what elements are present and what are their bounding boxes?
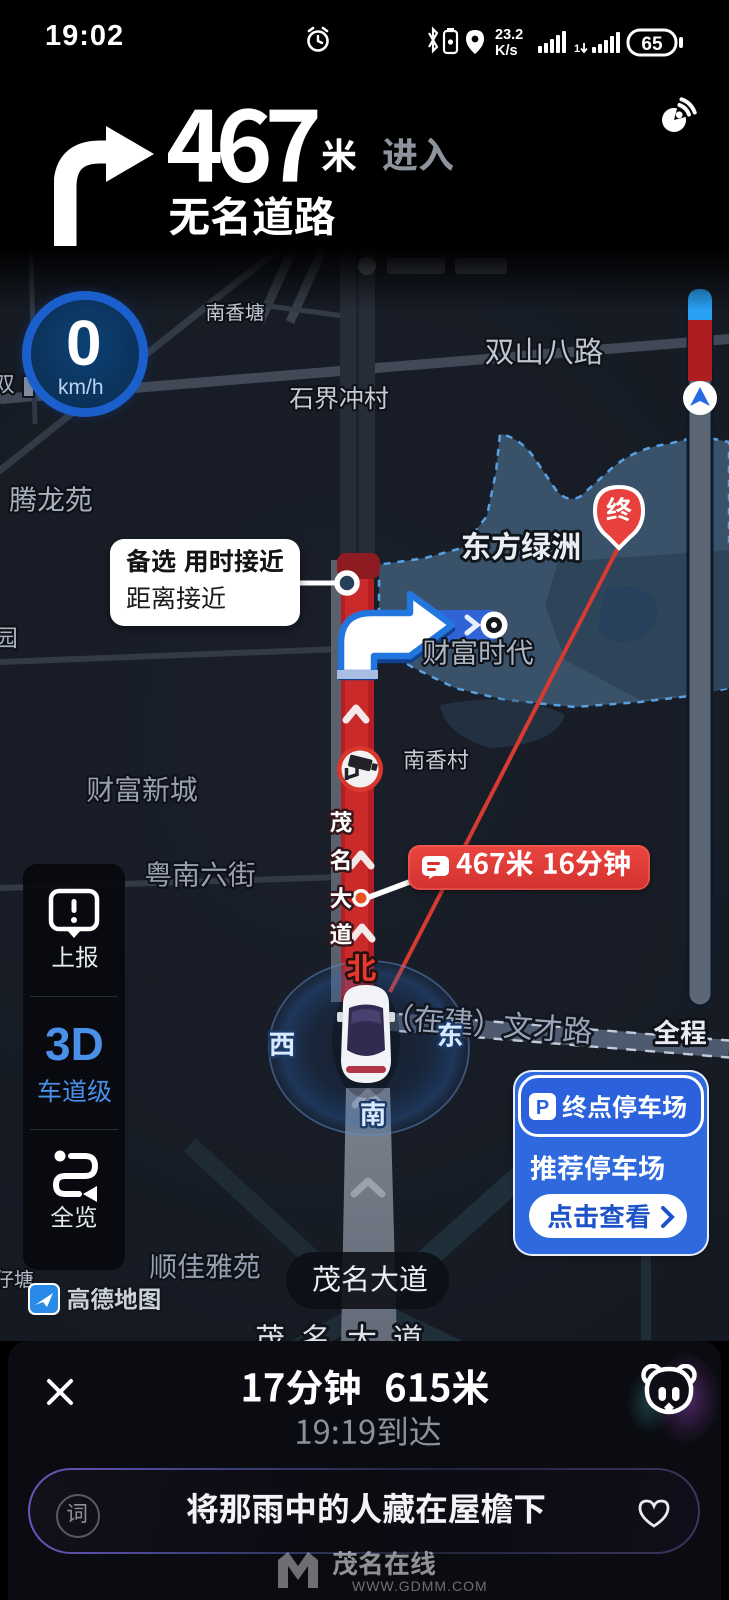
svg-text:23.2: 23.2 [495,27,523,43]
svg-text:65: 65 [641,34,663,55]
svg-text:K/s: K/s [495,43,518,59]
svg-text:P: P [536,1097,549,1119]
svg-text:1: 1 [574,43,580,55]
